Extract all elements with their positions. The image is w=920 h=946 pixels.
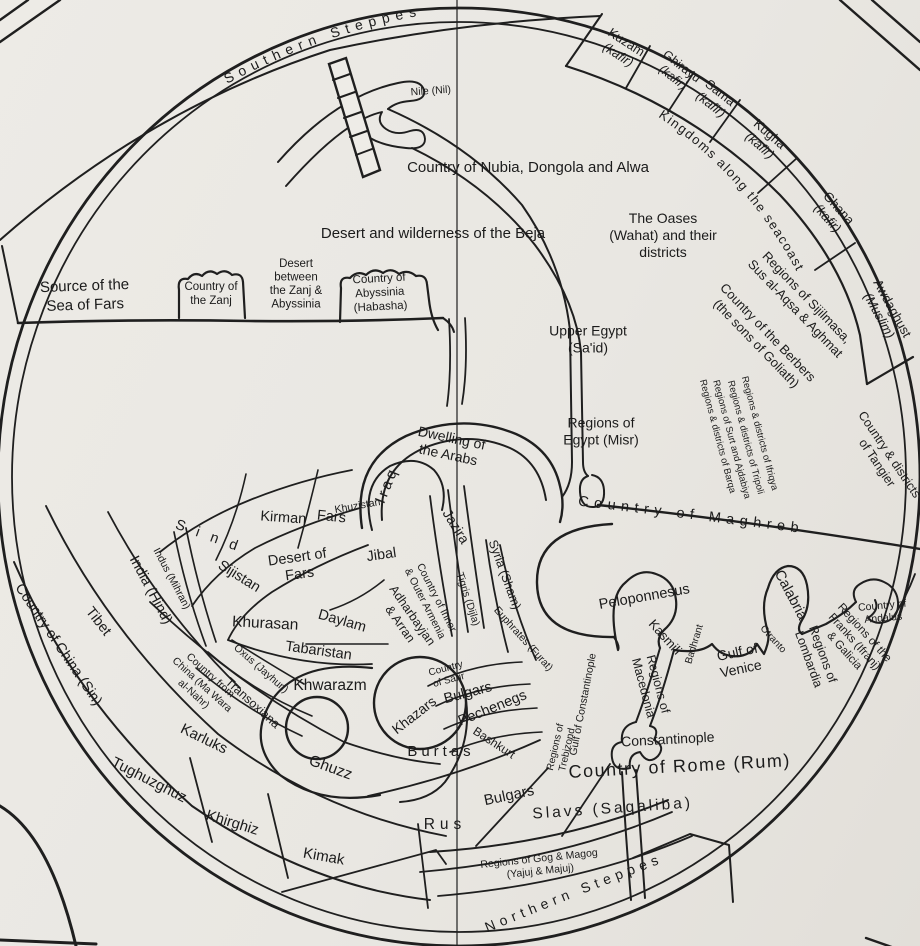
label-beja-desert: Desert and wilderness of the Beja <box>321 225 546 242</box>
label-jibal: Jibal <box>366 545 398 565</box>
label-kasmili: Kasmili <box>646 616 685 657</box>
label-bulgars-danube: Bulgars <box>482 782 535 809</box>
label-gulf-of-venice: Gulf ofVenice <box>715 640 763 681</box>
label-khirghiz: Khirghiz <box>204 807 261 839</box>
label-tangier: Country & districtsof Tangier <box>843 409 920 509</box>
label-slavs: Slavs (Saqaliba) <box>532 794 694 822</box>
label-regions-of-egypt: Regions ofEgypt (Misr) <box>563 415 638 448</box>
label-khazars: Khazars <box>389 693 439 737</box>
world-map-canvas: Nile (Nil)Country of Nubia, Dongola and … <box>0 0 920 946</box>
label-nubia-dongola-alwa: Country of Nubia, Dongola and Alwa <box>407 159 649 176</box>
label-china: Country of China (Sin) <box>12 581 105 709</box>
label-abyssinia: Country ofAbyssinia(Habasha) <box>352 272 408 315</box>
label-tigris: Tigris (Dijla) <box>454 571 483 628</box>
corner-top-left <box>0 0 60 42</box>
label-kimak: Kimak <box>302 845 346 869</box>
label-tibet: Tibet <box>82 604 114 639</box>
label-gulf-of-constantinople: Gulf of Constantinople <box>567 652 599 756</box>
label-country-of-rome: Country of Rome (Rum) <box>568 750 791 782</box>
world-map-page: Nile (Nil)Country of Nubia, Dongola and … <box>0 0 920 946</box>
label-nile: Nile (Nil) <box>410 84 451 99</box>
bosporus-strait <box>622 770 645 900</box>
label-daylam: Daylam <box>316 607 368 636</box>
sea-of-fars-west-slant <box>2 246 18 323</box>
label-southern-steppes: Southern Steppes <box>221 2 423 86</box>
label-gog-magog: Regions of Gog & Magog(Yajuj & Majuj) <box>480 847 600 884</box>
corner-bottom-left <box>0 806 96 946</box>
label-sind: S i n d <box>173 517 243 556</box>
label-karluks: Karluks <box>178 720 230 757</box>
label-khurasan: Khurasan <box>232 613 299 633</box>
label-sijistan: Sijistan <box>215 557 263 595</box>
label-dwelling-arabs: Dwelling ofthe Arabs <box>413 423 487 470</box>
label-country-of-zanj: Country ofthe Zanj <box>184 281 238 307</box>
label-sama: Sama(kafir) <box>693 76 739 121</box>
label-desert-of-fars: Desert ofFars <box>267 545 331 586</box>
label-constantinople: Constantinople <box>621 729 715 750</box>
label-burtas: Burtas <box>407 743 474 760</box>
corner-bottom-right <box>866 938 920 946</box>
sea-of-fars-coast <box>18 318 443 323</box>
label-desert-zanj-abyssinia: Desertbetweenthe Zanj &Abyssinia <box>270 258 323 311</box>
nile-mountain <box>329 58 380 177</box>
label-fars: Fars <box>316 508 347 527</box>
label-andalus: Country ofAndalus <box>858 598 908 627</box>
label-country-of-maghreb: Country of Maghreb <box>577 494 805 537</box>
label-tughuzghuz: Tughuzghuz <box>109 754 190 806</box>
awdaghust-cell-close <box>867 357 913 384</box>
label-kugha: Kugha(kafir) <box>741 116 790 164</box>
label-khwarazm: Khwarazm <box>293 677 366 694</box>
label-upper-egypt: Upper Egypt(Sa'id) <box>549 323 627 356</box>
label-oases: The Oases(Wahat) and theirdistricts <box>609 210 717 260</box>
corner-top-right <box>840 0 920 70</box>
label-rus: Rus <box>424 816 467 833</box>
east-mediterranean <box>537 524 614 637</box>
label-badhrant: Badhrant <box>683 623 705 665</box>
label-source-sea-of-fars: Source of theSea of Fars <box>40 276 130 315</box>
label-macedonia: Regions ofMacedonia <box>629 653 673 720</box>
china-band-arc <box>14 562 430 900</box>
label-kirman: Kirman <box>260 508 307 527</box>
